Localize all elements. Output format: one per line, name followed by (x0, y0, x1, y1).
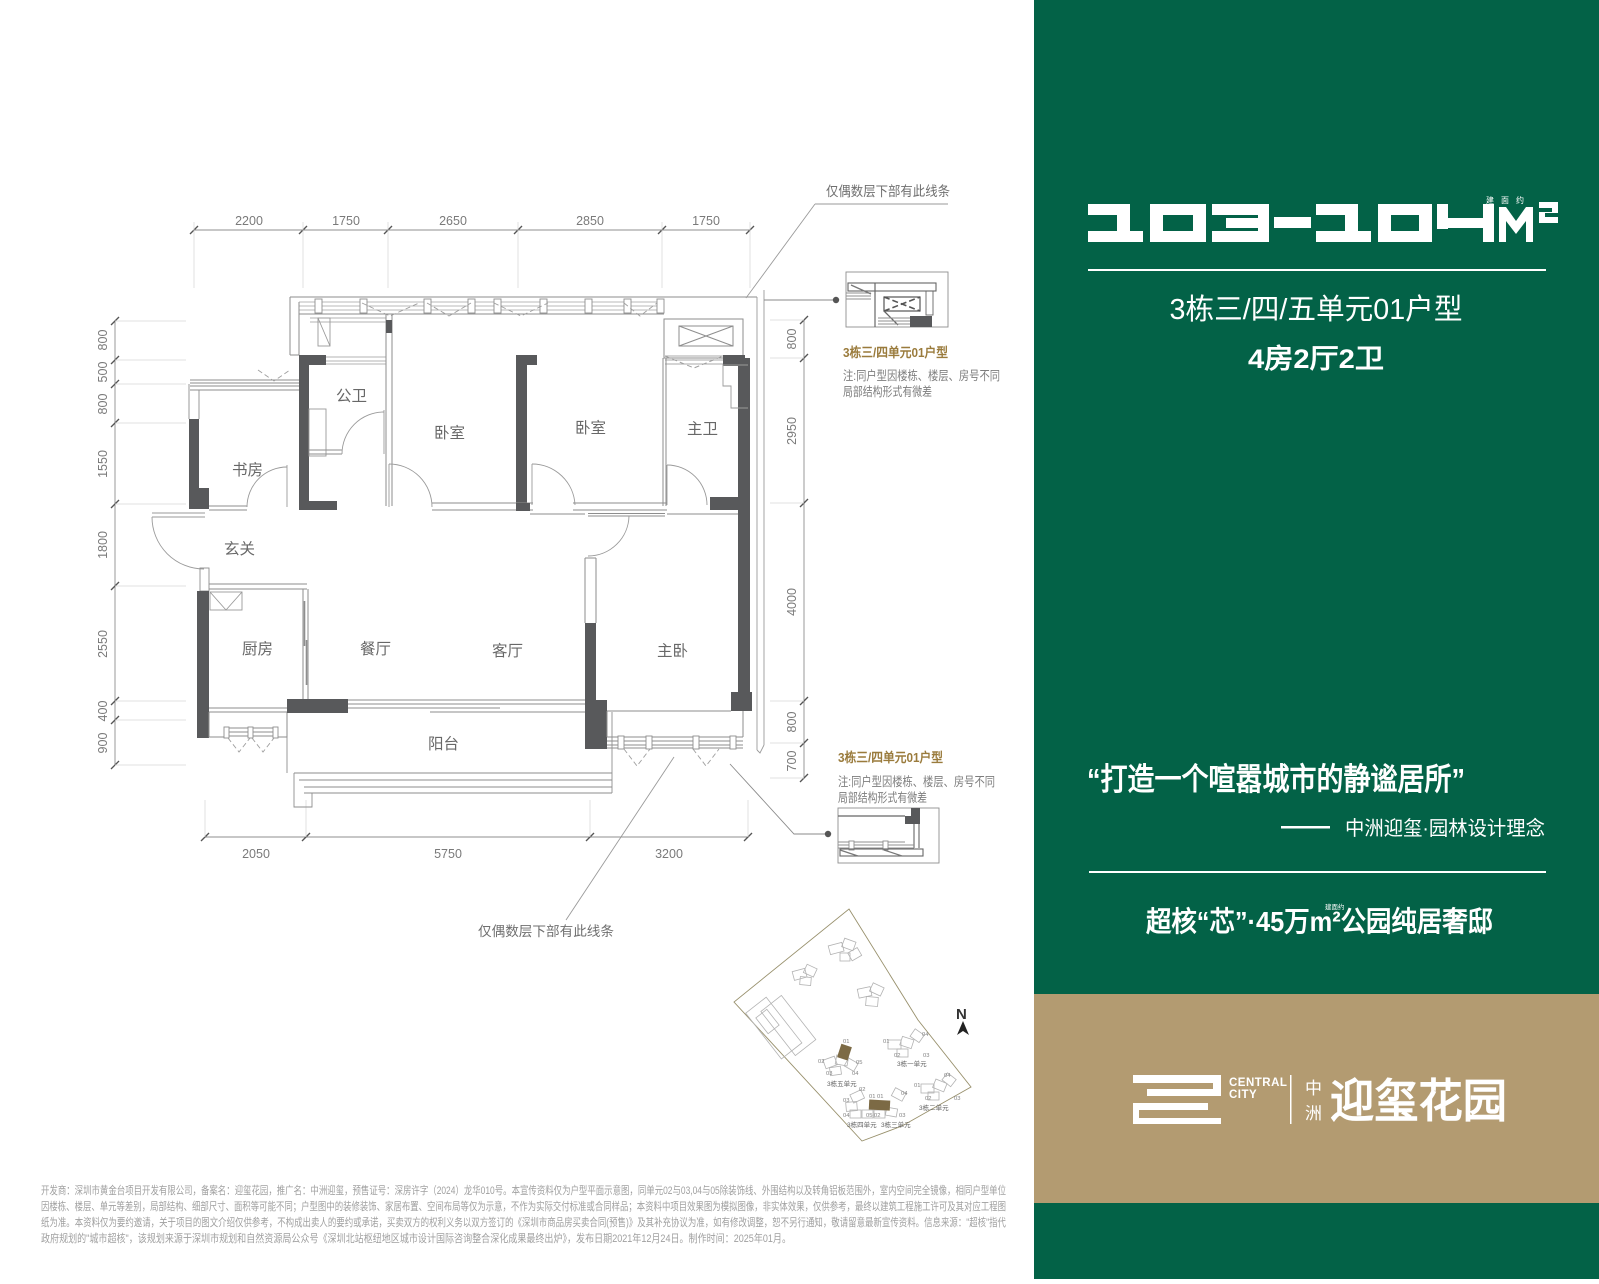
svg-text:主卫: 主卫 (687, 420, 718, 438)
svg-text:餐厅: 餐厅 (360, 640, 391, 658)
svg-text:开发商：深圳市黄金台项目开发有限公司，备案名：迎玺花园，推广: 开发商：深圳市黄金台项目开发有限公司，备案名：迎玺花园，推广名：中洲迎玺，预售证… (41, 1183, 1006, 1197)
svg-text:阳台: 阳台 (428, 735, 459, 753)
svg-text:2650: 2650 (439, 214, 467, 228)
svg-text:公卫: 公卫 (336, 388, 367, 405)
svg-text:2050: 2050 (242, 847, 270, 861)
svg-text:注:同户型因楼栋、楼层、房号不同: 注:同户型因楼栋、楼层、房号不同 (838, 774, 995, 789)
svg-text:CENTRAL: CENTRAL (1229, 1077, 1287, 1089)
svg-text:洲: 洲 (1305, 1104, 1322, 1123)
svg-text:1750: 1750 (332, 214, 360, 228)
svg-text:纸为准。本资料仅为要约邀请，关于项目的图文介绍仅供参考，不构: 纸为准。本资料仅为要约邀请，关于项目的图文介绍仅供参考，不构成出卖人的要约或承诺… (41, 1215, 1006, 1229)
svg-text:03: 03 (954, 1096, 960, 1102)
svg-text:900: 900 (96, 733, 110, 754)
svg-text:CITY: CITY (1229, 1089, 1257, 1101)
svg-text:建面约: 建面约 (1486, 195, 1531, 205)
svg-text:03: 03 (899, 1113, 905, 1119)
svg-text:04: 04 (901, 1091, 908, 1097)
svg-text:3200: 3200 (655, 847, 683, 861)
svg-text:中洲迎玺·园林设计理念: 中洲迎玺·园林设计理念 (1345, 816, 1545, 840)
svg-text:3栋四单元: 3栋四单元 (847, 1120, 877, 1129)
svg-text:800: 800 (96, 394, 110, 415)
svg-text:4房2厅2卫: 4房2厅2卫 (1248, 344, 1384, 374)
svg-text:政府规划的"城市超核"，该规划来源于深圳市规划和自然资源局公: 政府规划的"城市超核"，该规划来源于深圳市规划和自然资源局公众号《深圳北站枢纽地… (41, 1231, 791, 1245)
svg-text:05: 05 (856, 1060, 862, 1066)
svg-text:因楼栋、楼层、单元等差别，局部结构、细部尺寸、面积等可能不同: 因楼栋、楼层、单元等差别，局部结构、细部尺寸、面积等可能不同；户型图中的装修装饰… (41, 1199, 1006, 1213)
svg-text:02: 02 (818, 1059, 824, 1065)
svg-text:主卧: 主卧 (657, 642, 688, 660)
svg-text:中: 中 (1305, 1079, 1322, 1098)
svg-text:3栋三/四单元01户型: 3栋三/四单元01户型 (838, 750, 943, 765)
svg-text:04: 04 (944, 1073, 951, 1079)
svg-text:2850: 2850 (576, 214, 604, 228)
svg-text:800: 800 (785, 712, 799, 733)
svg-text:800: 800 (96, 330, 110, 351)
svg-text:02: 02 (859, 1087, 865, 1093)
svg-text:700: 700 (785, 751, 799, 772)
svg-text:01 01: 01 01 (869, 1094, 884, 1100)
svg-text:迎玺花园: 迎玺花园 (1330, 1075, 1507, 1127)
svg-text:04: 04 (843, 1113, 850, 1119)
svg-text:02: 02 (894, 1053, 900, 1059)
svg-text:“打造一个喧嚣城市的静谧居所”: “打造一个喧嚣城市的静谧居所” (1087, 762, 1465, 797)
svg-text:1550: 1550 (96, 450, 110, 478)
svg-text:2950: 2950 (785, 417, 799, 445)
svg-text:04: 04 (922, 1032, 929, 1038)
svg-text:01: 01 (914, 1083, 920, 1089)
svg-text:2200: 2200 (235, 214, 263, 228)
svg-text:5750: 5750 (434, 847, 462, 861)
svg-text:书房: 书房 (232, 461, 263, 479)
svg-text:03: 03 (923, 1053, 929, 1059)
svg-text:局部结构形式有微差: 局部结构形式有微差 (838, 790, 927, 805)
svg-text:01: 01 (883, 1039, 889, 1045)
svg-text:卧室: 卧室 (575, 419, 606, 437)
svg-text:3栋二单元: 3栋二单元 (919, 1103, 949, 1112)
svg-text:超核“芯”·45万m²公园纯居奢邸: 超核“芯”·45万m²公园纯居奢邸 (1146, 906, 1493, 937)
svg-text:05 02: 05 02 (866, 1113, 881, 1119)
svg-text:3栋三/四/五单元01户型: 3栋三/四/五单元01户型 (1170, 293, 1463, 326)
svg-text:400: 400 (96, 701, 110, 722)
svg-text:1750: 1750 (692, 214, 720, 228)
svg-text:厨房: 厨房 (242, 640, 273, 658)
svg-text:仅偶数层下部有此线条: 仅偶数层下部有此线条 (478, 923, 615, 939)
svg-text:03: 03 (826, 1071, 832, 1077)
svg-text:04: 04 (852, 1071, 859, 1077)
svg-text:3栋三单元: 3栋三单元 (881, 1120, 911, 1129)
svg-text:建面约: 建面约 (1325, 902, 1345, 911)
svg-text:4000: 4000 (785, 588, 799, 616)
svg-text:仅偶数层下部有此线条: 仅偶数层下部有此线条 (826, 183, 950, 199)
svg-text:02: 02 (925, 1096, 931, 1102)
svg-text:01: 01 (843, 1039, 849, 1045)
svg-text:3栋三/四单元01户型: 3栋三/四单元01户型 (843, 345, 948, 360)
svg-text:500: 500 (96, 362, 110, 383)
svg-text:03: 03 (843, 1098, 849, 1104)
svg-text:卧室: 卧室 (434, 424, 465, 442)
svg-text:2550: 2550 (96, 630, 110, 658)
svg-text:1800: 1800 (96, 531, 110, 559)
svg-text:客厅: 客厅 (492, 642, 523, 660)
svg-text:3栋五单元: 3栋五单元 (827, 1079, 857, 1088)
svg-text:800: 800 (785, 329, 799, 350)
svg-text:局部结构形式有微差: 局部结构形式有微差 (843, 384, 932, 399)
svg-text:3栋一单元: 3栋一单元 (897, 1059, 927, 1068)
svg-text:注:同户型因楼栋、楼层、房号不同: 注:同户型因楼栋、楼层、房号不同 (843, 368, 1000, 383)
svg-text:玄关: 玄关 (224, 540, 255, 558)
svg-text:N: N (956, 1006, 967, 1023)
